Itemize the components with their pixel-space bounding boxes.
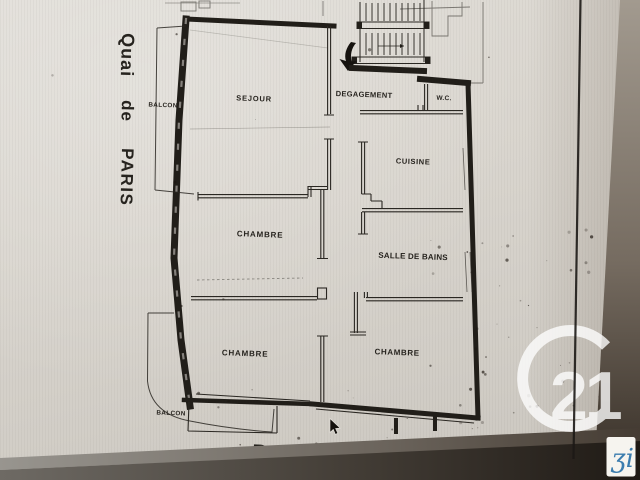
century21-seal: ʒi: [607, 437, 636, 477]
street-label-quai-de-paris: Quai de PARIS: [116, 33, 138, 207]
street-left-word1: Quai: [117, 33, 138, 78]
exterior-walls: [174, 19, 478, 418]
photographed-floorplan-page: SEJOUR DEGAGEMENT W.C. CUISINE CHAMBRE S…: [0, 0, 640, 480]
stair-landings: [352, 22, 430, 64]
room-label-salle-de-bains: SALLE DE BAINS: [378, 251, 448, 262]
street-left-word3: PARIS: [116, 148, 137, 207]
watermark-number: 21: [550, 358, 621, 434]
mouse-cursor: [330, 419, 340, 435]
room-label-sejour: SEJOUR: [236, 93, 272, 103]
seal-glyph: ʒi: [610, 444, 634, 474]
balcony-label-top: BALCON: [148, 101, 178, 109]
room-label-chambre-center: CHAMBRE: [237, 229, 284, 240]
staircase: [352, 0, 430, 64]
interior-walls: [188, 26, 474, 433]
room-labels: SEJOUR DEGAGEMENT W.C. CUISINE CHAMBRE S…: [148, 89, 452, 417]
room-label-chambre-bottom-left: CHAMBRE: [222, 348, 269, 359]
stair-direction-arrow: [378, 44, 404, 48]
room-label-wc: W.C.: [436, 95, 452, 103]
room-label-degagement: DEGAGEMENT: [336, 89, 393, 100]
street-left-word2: de: [117, 100, 137, 122]
room-label-chambre-bottom-right: CHAMBRE: [374, 347, 419, 358]
floorplan-drawing: SEJOUR DEGAGEMENT W.C. CUISINE CHAMBRE S…: [0, 0, 640, 480]
floorplan: SEJOUR DEGAGEMENT W.C. CUISINE CHAMBRE S…: [116, 0, 483, 476]
adjacent-structure-lines: [165, 1, 483, 83]
room-label-cuisine: CUISINE: [396, 156, 431, 166]
balcony-label-bottom: BALCON: [156, 409, 186, 417]
faint-scan-lines: [190, 30, 330, 280]
